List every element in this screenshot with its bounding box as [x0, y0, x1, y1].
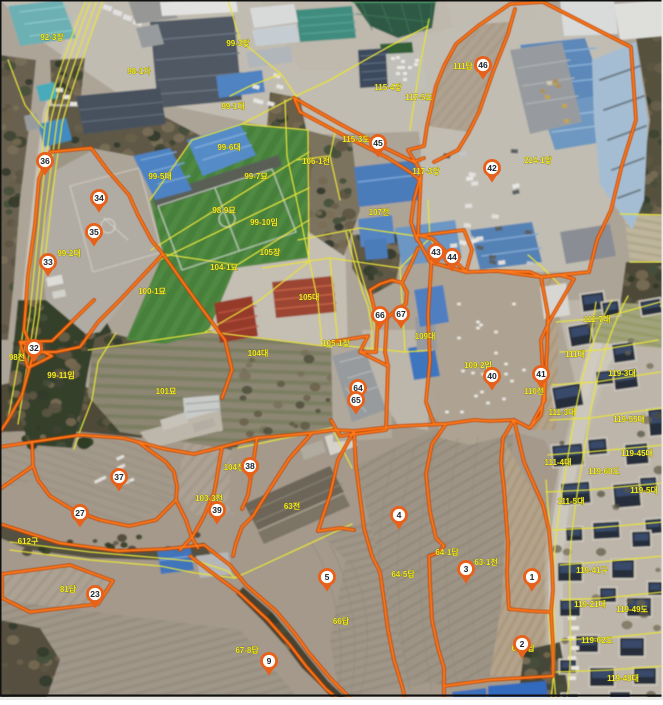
svg-text:40: 40	[487, 371, 497, 381]
svg-text:98전: 98전	[9, 352, 25, 362]
svg-text:27: 27	[75, 508, 85, 518]
svg-text:119-62도: 119-62도	[581, 636, 613, 645]
svg-text:64-1답: 64-1답	[435, 547, 459, 557]
svg-text:111-3대: 111-3대	[549, 407, 576, 417]
svg-text:23: 23	[90, 589, 100, 599]
svg-text:99-7묘: 99-7묘	[244, 172, 268, 181]
svg-text:117-5도: 117-5도	[405, 93, 433, 102]
svg-text:119-55대: 119-55대	[613, 414, 645, 424]
svg-text:43: 43	[431, 247, 441, 257]
svg-text:99-2대: 99-2대	[57, 248, 80, 258]
svg-text:45: 45	[373, 138, 383, 148]
svg-text:119-45대: 119-45대	[621, 448, 653, 458]
svg-text:99-3장: 99-3장	[226, 38, 250, 48]
svg-text:119-21대: 119-21대	[574, 599, 606, 609]
svg-text:111-4대: 111-4대	[545, 457, 572, 467]
svg-text:105대: 105대	[299, 292, 320, 302]
svg-text:41: 41	[536, 369, 546, 379]
svg-text:32: 32	[29, 343, 39, 353]
svg-text:104대: 104대	[248, 348, 269, 358]
svg-text:67-8답: 67-8답	[235, 645, 259, 655]
svg-text:115-4장: 115-4장	[374, 82, 402, 92]
svg-text:1: 1	[530, 572, 535, 582]
svg-text:63-1전: 63-1전	[474, 557, 497, 567]
svg-text:64-5답: 64-5답	[391, 569, 415, 579]
svg-text:119-3대: 119-3대	[608, 368, 635, 378]
svg-text:4: 4	[397, 510, 402, 520]
svg-text:42: 42	[487, 163, 497, 173]
svg-text:36: 36	[40, 156, 50, 166]
svg-text:81답: 81답	[60, 584, 77, 594]
svg-text:612구: 612구	[18, 537, 39, 546]
svg-text:44: 44	[447, 252, 457, 262]
svg-text:105장: 105장	[260, 247, 281, 257]
svg-text:98-1차: 98-1차	[127, 66, 151, 76]
svg-text:99-6대: 99-6대	[217, 142, 240, 152]
svg-text:66: 66	[375, 310, 385, 320]
svg-text:119-48대: 119-48대	[607, 673, 639, 683]
svg-text:37: 37	[114, 472, 124, 482]
svg-text:119-41구: 119-41구	[576, 566, 608, 575]
svg-text:106-1전: 106-1전	[302, 156, 330, 166]
svg-text:119-5대: 119-5대	[630, 485, 657, 495]
svg-text:224-1장: 224-1장	[524, 155, 552, 165]
svg-text:66답: 66답	[333, 616, 350, 626]
svg-text:99-11임: 99-11임	[47, 370, 74, 380]
svg-text:2: 2	[520, 639, 525, 649]
svg-text:99-1대: 99-1대	[221, 101, 244, 111]
svg-text:67: 67	[396, 309, 406, 319]
svg-text:39: 39	[212, 505, 222, 515]
svg-text:111대: 111대	[565, 349, 585, 359]
svg-text:92-3장: 92-3장	[40, 32, 64, 42]
svg-text:99-5대: 99-5대	[148, 171, 171, 181]
svg-text:33: 33	[43, 257, 53, 267]
svg-text:98-9묘: 98-9묘	[212, 206, 236, 215]
svg-text:5: 5	[325, 572, 330, 582]
svg-text:117-3장: 117-3장	[412, 166, 440, 176]
svg-text:119-60도: 119-60도	[588, 467, 620, 476]
svg-text:111-5대: 111-5대	[558, 496, 585, 506]
svg-text:109대: 109대	[415, 331, 436, 341]
svg-text:115-3도: 115-3도	[342, 135, 370, 144]
svg-text:119-49도: 119-49도	[616, 605, 648, 614]
svg-text:9: 9	[267, 656, 272, 666]
svg-text:65: 65	[351, 395, 361, 405]
svg-text:99-10임: 99-10임	[250, 217, 278, 227]
svg-text:100-1묘: 100-1묘	[138, 287, 166, 296]
svg-text:35: 35	[89, 227, 99, 237]
svg-text:34: 34	[94, 193, 104, 203]
svg-text:3: 3	[464, 564, 469, 574]
svg-text:107전: 107전	[369, 207, 390, 217]
svg-text:104-1묘: 104-1묘	[210, 263, 238, 272]
svg-text:46: 46	[478, 60, 488, 70]
svg-text:38: 38	[245, 461, 255, 471]
svg-text:111-7대: 111-7대	[584, 314, 611, 324]
svg-text:63전: 63전	[284, 501, 300, 511]
svg-text:105-1장: 105-1장	[322, 338, 350, 348]
svg-text:111답: 111답	[453, 61, 473, 71]
svg-text:101묘: 101묘	[156, 387, 177, 396]
